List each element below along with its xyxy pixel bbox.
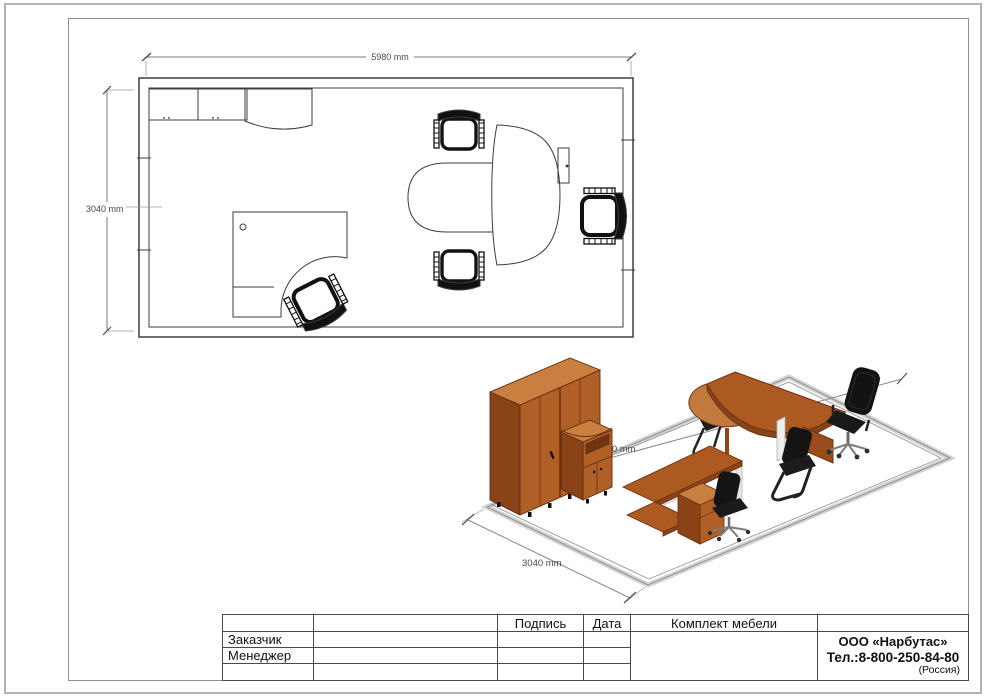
customer-signature-cell — [498, 632, 584, 648]
title-block-empty-cell — [818, 615, 968, 632]
customer-row-label: Заказчик — [223, 632, 314, 648]
plan-curved-cabinet — [245, 89, 312, 129]
customer-date-cell — [584, 632, 631, 648]
manager-date-cell — [584, 648, 631, 664]
title-block: Подпись Дата Комплект мебели Заказчик ОО… — [222, 614, 969, 681]
title-block-empty-cell — [498, 664, 584, 680]
company-info: ООО «Нарбутас» Тел.:8-800-250-84-80 (Рос… — [818, 632, 968, 680]
plan-cabinets — [149, 89, 247, 120]
title-block-empty-cell — [314, 615, 498, 632]
title-block-empty-cell — [223, 615, 314, 632]
signature-column-header: Подпись — [498, 615, 584, 632]
plan-task-chair — [283, 272, 353, 337]
plan-width-dimension: 5980 mm — [142, 52, 636, 76]
company-country: (Россия) — [919, 665, 964, 677]
project-body-cell — [631, 632, 818, 680]
iso-view: 3040 mm 5980 mm — [462, 358, 950, 603]
company-name: ООО «Нарбутас» — [838, 635, 947, 650]
title-block-empty-cell — [584, 664, 631, 680]
drawing-canvas: 5980 mm 3040 mm — [0, 0, 988, 700]
plan-visitor-chair-top — [434, 110, 484, 149]
plan-width-label: 5980 mm — [371, 52, 409, 62]
customer-value-cell — [314, 632, 498, 648]
plan-executive-chair — [582, 188, 627, 244]
plan-visitor-chair-bottom — [434, 251, 484, 290]
title-block-empty-cell — [314, 664, 498, 680]
date-column-header: Дата — [584, 615, 631, 632]
plan-depth-dimension: 3040 mm — [86, 86, 162, 335]
iso-depth-label: 3040 mm — [522, 558, 562, 569]
iso-low-cabinet — [561, 420, 612, 504]
floor-plan: 5980 mm 3040 mm — [86, 52, 636, 337]
plan-depth-label: 3040 mm — [86, 204, 124, 214]
manager-value-cell — [314, 648, 498, 664]
plan-executive-desk — [408, 125, 569, 265]
room-walls — [137, 78, 635, 337]
iso-executive-chair — [826, 365, 882, 459]
title-block-empty-cell — [223, 664, 314, 680]
project-title: Комплект мебели — [631, 615, 818, 632]
company-phone: Тел.:8-800-250-84-80 — [827, 650, 959, 665]
manager-row-label: Менеджер — [223, 648, 314, 664]
manager-signature-cell — [498, 648, 584, 664]
furniture-drawing-page: 5980 mm 3040 mm — [0, 0, 988, 700]
iso-depth-dimension: 3040 mm — [462, 509, 645, 603]
